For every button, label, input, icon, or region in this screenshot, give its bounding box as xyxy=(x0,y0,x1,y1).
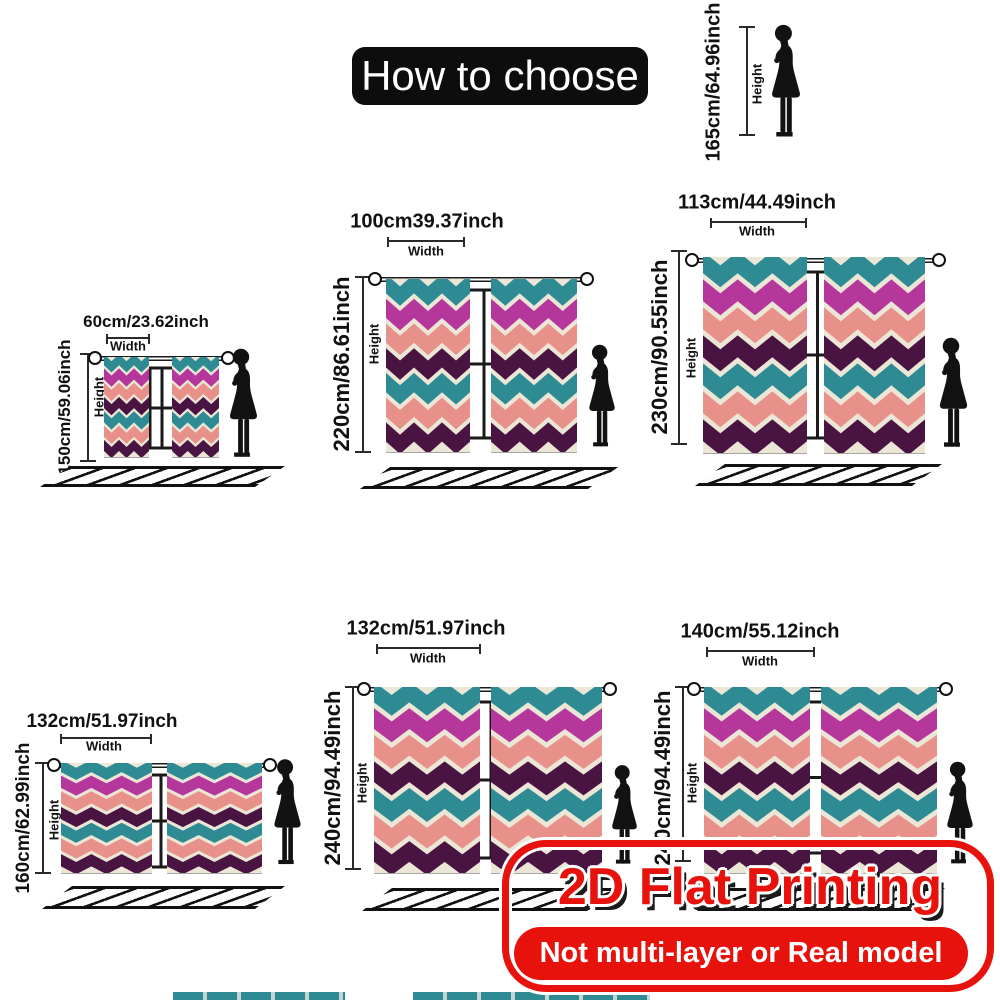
person-silhouette xyxy=(226,348,261,466)
rod-finial-right xyxy=(939,682,953,696)
notice-pill: Not multi-layer or Real model xyxy=(514,927,968,980)
width-label: Width xyxy=(110,339,146,354)
reference-measure-line xyxy=(746,26,748,136)
curtain-panel-left xyxy=(374,687,480,873)
curtain-panel-left xyxy=(104,357,149,457)
person-silhouette xyxy=(766,24,806,146)
height-measure-line xyxy=(678,250,680,445)
curtain-panel-left xyxy=(703,257,807,453)
height-value: 160cm/62.99inch xyxy=(13,742,35,893)
height-value: 240cm/94.49inch xyxy=(320,691,346,866)
height-measure-line xyxy=(87,353,89,462)
curtain-panel-right xyxy=(167,763,262,873)
width-value: 113cm/44.49inch xyxy=(678,192,836,215)
rod-finial-left xyxy=(687,682,701,696)
curtain-panel-right xyxy=(824,257,925,453)
person-silhouette xyxy=(271,758,304,873)
height-label: Height xyxy=(47,800,62,840)
floor-hatch xyxy=(40,466,285,487)
height-label: Height xyxy=(685,763,700,803)
height-label: Height xyxy=(355,763,370,803)
width-label: Width xyxy=(739,224,775,239)
curtain-panel-left xyxy=(61,763,152,873)
height-label: Height xyxy=(684,338,699,378)
rod-finial-left xyxy=(357,682,371,696)
width-label: Width xyxy=(408,244,444,259)
rod-finial-right xyxy=(932,253,946,267)
curtain-panel-left xyxy=(386,279,470,452)
rod-finial-left xyxy=(368,272,382,286)
height-label: Height xyxy=(367,324,382,364)
width-value: 132cm/51.97inch xyxy=(26,711,177,733)
rod-finial-left xyxy=(47,758,61,772)
title-banner: How to choose xyxy=(352,47,648,105)
height-measure-line xyxy=(362,276,364,453)
rod-finial-left xyxy=(88,351,102,365)
partial-curtain-strip xyxy=(173,992,345,1000)
width-value: 60cm/23.62inch xyxy=(83,312,209,332)
width-value: 132cm/51.97inch xyxy=(347,618,506,641)
notice-subtitle: Not multi-layer or Real model xyxy=(540,937,943,970)
person-silhouette xyxy=(936,337,971,456)
page-title: How to choose xyxy=(361,52,639,100)
width-label: Width xyxy=(86,739,122,754)
rod-finial-right xyxy=(603,682,617,696)
floor-hatch xyxy=(695,464,942,486)
floor-hatch xyxy=(360,467,618,489)
height-value: 230cm/90.55inch xyxy=(647,260,673,435)
floor-hatch xyxy=(42,886,285,909)
curtain-panel-right xyxy=(491,279,577,452)
height-value: 150cm/59.06inch xyxy=(55,339,75,474)
reference-height-value: 165cm/64.96inch xyxy=(703,3,726,162)
curtain-panel-right xyxy=(172,357,219,457)
person-silhouette xyxy=(586,341,618,455)
rod-finial-left xyxy=(685,253,699,267)
notice-title: 2D Flat Printing xyxy=(558,857,942,917)
width-label: Width xyxy=(410,651,446,666)
width-label: Width xyxy=(742,654,778,669)
width-value: 100cm39.37inch xyxy=(350,211,503,234)
partial-curtain-strip xyxy=(413,992,650,1000)
height-value: 220cm/86.61inch xyxy=(329,277,355,452)
rod-finial-right xyxy=(580,272,594,286)
notice-banner: 2D Flat Printing Not multi-layer or Real… xyxy=(502,840,994,992)
height-measure-line xyxy=(42,762,44,874)
width-value: 140cm/55.12inch xyxy=(681,621,840,644)
reference-height-label: Height xyxy=(750,64,765,104)
